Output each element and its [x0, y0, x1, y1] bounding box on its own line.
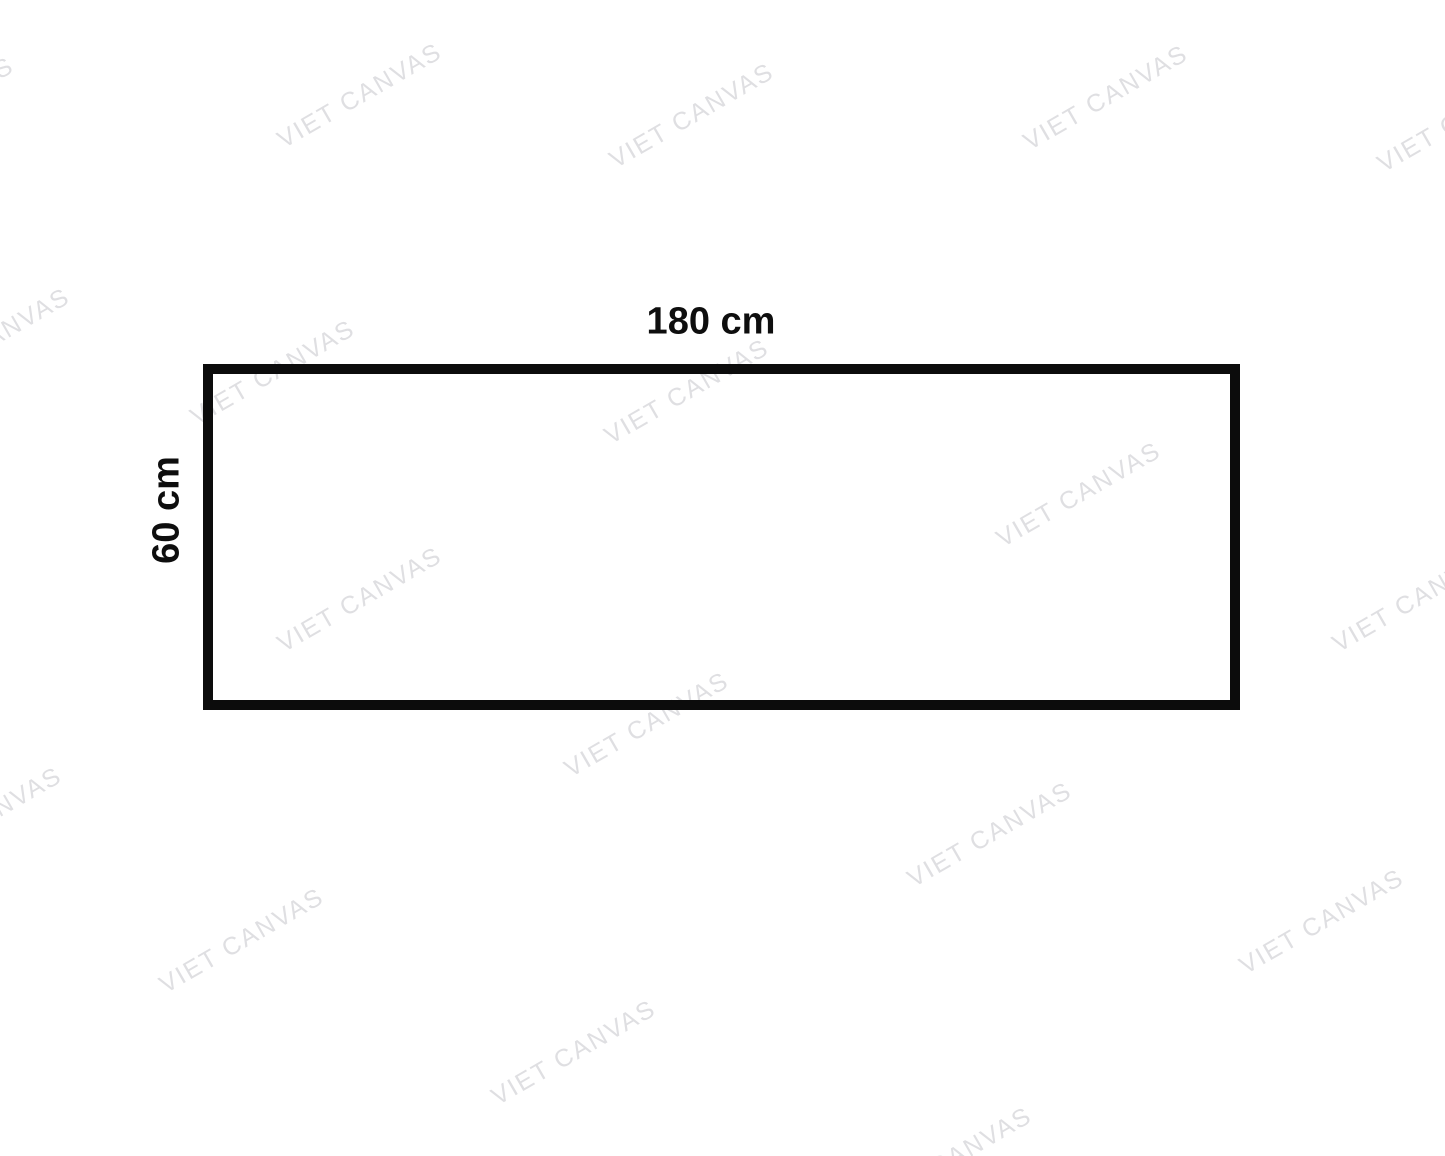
- watermark-text: VIET CANVAS: [155, 882, 330, 1000]
- page: VIET CANVASVIET CANVASVIET CANVASVIET CA…: [0, 0, 1445, 1156]
- watermark-text: VIET CANVAS: [0, 282, 75, 400]
- watermark-text: VIET CANVAS: [1235, 863, 1410, 981]
- watermark-text: VIET CANVAS: [1019, 39, 1194, 157]
- width-dimension-label: 180 cm: [647, 301, 776, 344]
- watermark-text: VIET CANVAS: [863, 1101, 1038, 1156]
- watermark-text: VIET CANVAS: [273, 37, 448, 155]
- watermark-text: VIET CANVAS: [0, 761, 67, 879]
- height-dimension-label: 60 cm: [146, 456, 189, 564]
- watermark-text: VIET CANVAS: [903, 776, 1078, 894]
- canvas-outline-rectangle: [203, 364, 1240, 710]
- watermark-text: VIET CANVAS: [1373, 61, 1445, 179]
- watermark-text: VIET CANVAS: [487, 994, 662, 1112]
- watermark-text: VIET CANVAS: [605, 57, 780, 175]
- watermark-text: VIET CANVAS: [1328, 541, 1445, 659]
- watermark-text: VIET CANVAS: [0, 51, 19, 169]
